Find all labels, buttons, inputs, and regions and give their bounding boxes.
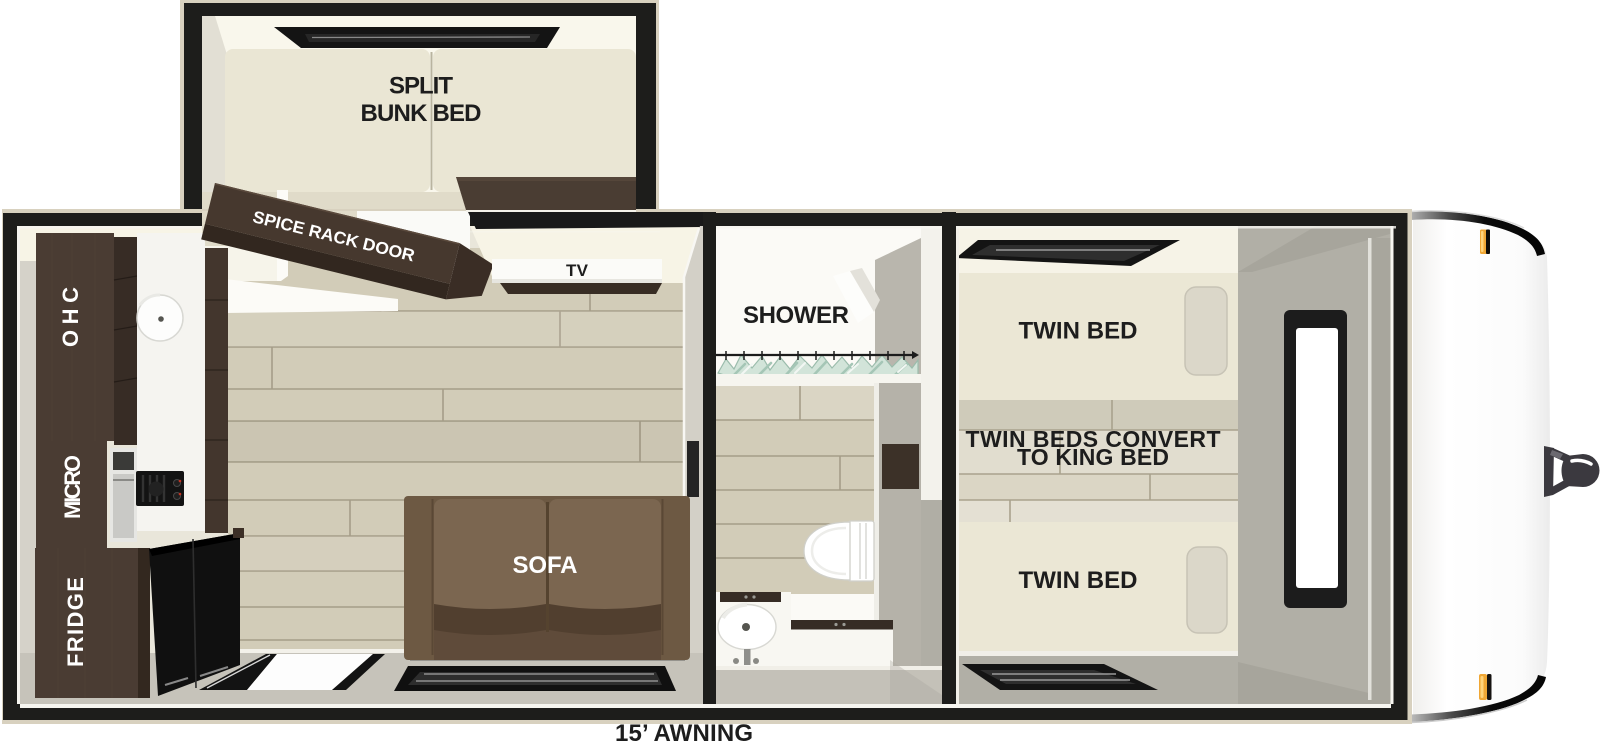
svg-text:TWIN BED: TWIN BED [1019, 318, 1138, 345]
svg-text:TV: TV [566, 261, 589, 280]
svg-text:MICRO: MICRO [60, 455, 85, 519]
svg-text:SOFA: SOFA [513, 552, 578, 579]
svg-text:TO KING BED: TO KING BED [1017, 444, 1169, 470]
svg-text:SHOWER: SHOWER [743, 302, 849, 329]
svg-text:SPLIT: SPLIT [389, 73, 453, 100]
svg-text:BUNK BED: BUNK BED [361, 100, 482, 127]
svg-text:TWIN BED: TWIN BED [1019, 567, 1138, 594]
svg-text:15’ AWNING: 15’ AWNING [615, 720, 753, 742]
svg-text:OHC: OHC [58, 287, 83, 347]
